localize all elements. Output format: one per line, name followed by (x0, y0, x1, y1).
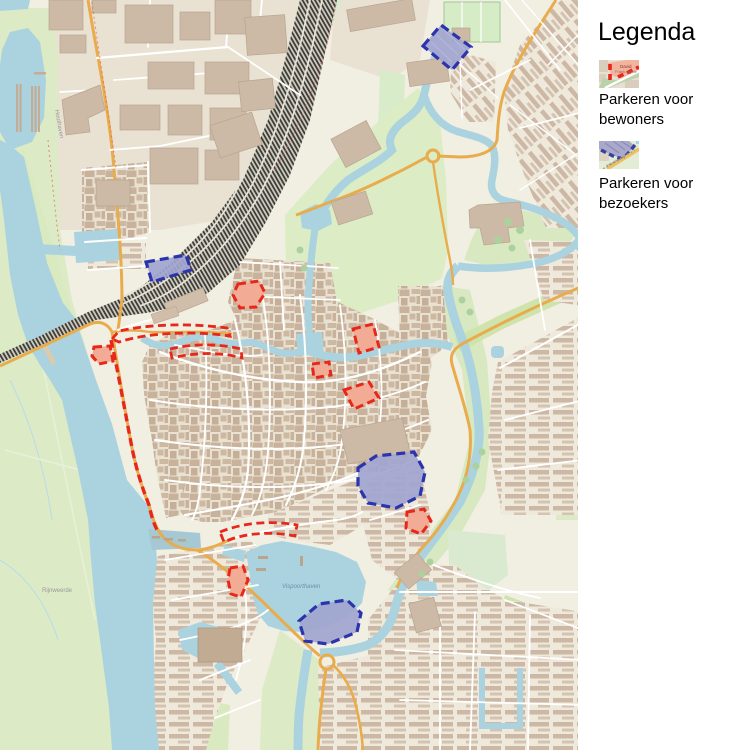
svg-text:Rijnweerde: Rijnweerde (42, 588, 73, 594)
svg-text:Vispoorthaven: Vispoorthaven (282, 584, 321, 590)
svg-text:Frank-Ageie: Frank-Ageie (615, 69, 638, 74)
